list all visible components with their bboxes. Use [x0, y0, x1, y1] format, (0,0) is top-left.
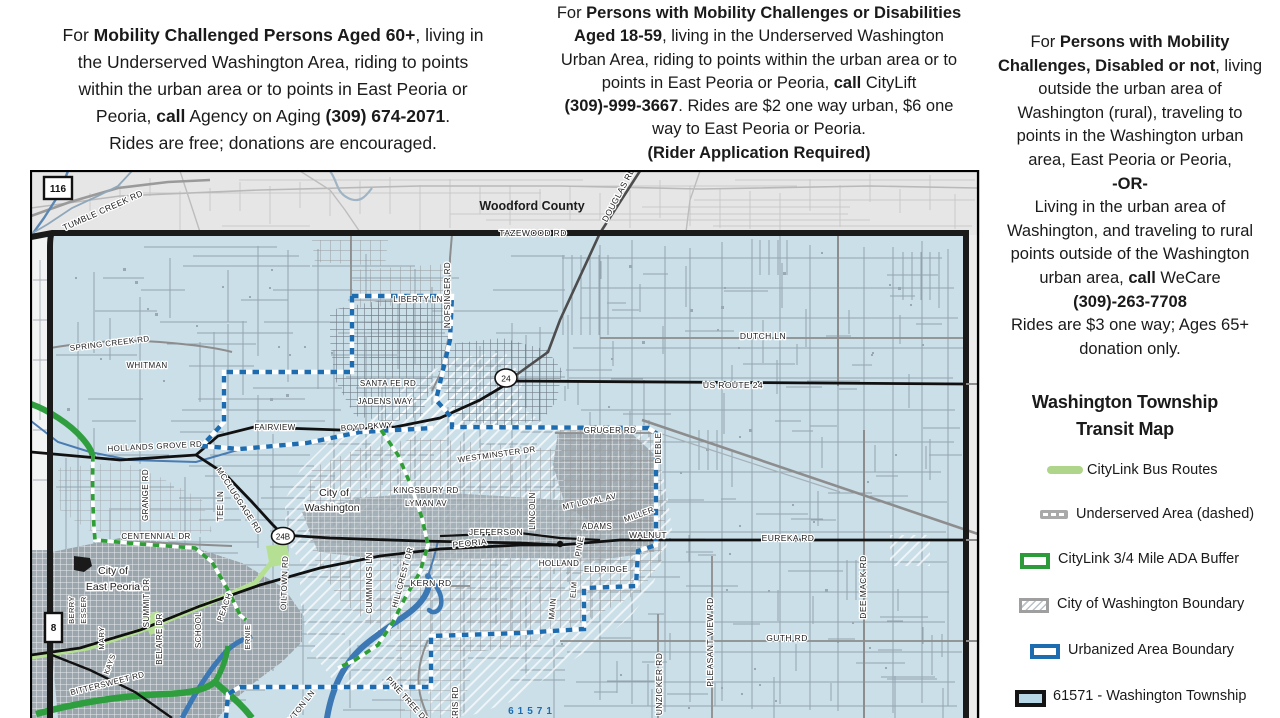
svg-text:WHITMAN: WHITMAN — [126, 361, 167, 370]
svg-text:OILTOWN RD: OILTOWN RD — [279, 556, 290, 611]
svg-text:61571: 61571 — [508, 706, 556, 717]
svg-text:BERRY: BERRY — [67, 596, 76, 624]
svg-text:DIEBLE: DIEBLE — [654, 433, 663, 464]
svg-text:GRUGER RD: GRUGER RD — [584, 426, 637, 435]
svg-text:City of: City of — [319, 487, 349, 499]
svg-text:CUMMINGS LN: CUMMINGS LN — [365, 552, 374, 613]
svg-text:KINGSBURY RD: KINGSBURY RD — [393, 486, 458, 495]
svg-text:KERN RD: KERN RD — [410, 578, 451, 588]
svg-text:City of: City of — [98, 565, 128, 577]
svg-text:24: 24 — [501, 374, 511, 384]
svg-text:MARY: MARY — [97, 626, 106, 649]
svg-text:MAIN: MAIN — [547, 598, 558, 620]
svg-text:TAZEWOOD RD: TAZEWOOD RD — [499, 228, 567, 238]
svg-text:ELDRIDGE: ELDRIDGE — [584, 565, 628, 574]
svg-text:Washington: Washington — [304, 502, 359, 514]
svg-text:Woodford County: Woodford County — [479, 199, 584, 213]
svg-text:LYMAN AV: LYMAN AV — [405, 499, 447, 508]
svg-text:SCHOOL: SCHOOL — [194, 612, 203, 648]
svg-text:DUTCH LN: DUTCH LN — [740, 331, 786, 341]
svg-text:ELM: ELM — [568, 581, 578, 598]
svg-text:LINCOLN: LINCOLN — [528, 492, 537, 529]
svg-text:SUMMIT DR: SUMMIT DR — [142, 579, 151, 628]
svg-text:East Peoria: East Peoria — [86, 581, 140, 593]
svg-text:ADAMS: ADAMS — [582, 522, 612, 531]
svg-text:DEE MACK RD: DEE MACK RD — [858, 555, 868, 618]
svg-text:UNZICKER RD: UNZICKER RD — [654, 653, 664, 716]
svg-text:BELAIRE DR: BELAIRE DR — [155, 613, 164, 665]
svg-text:LIBERTY LN: LIBERTY LN — [393, 295, 443, 304]
svg-text:GRANGE RD: GRANGE RD — [141, 469, 150, 521]
svg-text:CENTENNIAL DR: CENTENNIAL DR — [121, 532, 190, 541]
svg-text:GUTH RD: GUTH RD — [766, 633, 808, 643]
svg-text:JEFFERSON: JEFFERSON — [469, 527, 523, 537]
svg-text:WALNUT: WALNUT — [629, 530, 667, 540]
svg-text:EUREKA RD: EUREKA RD — [762, 533, 815, 543]
svg-text:NOFSINGER RD: NOFSINGER RD — [443, 262, 452, 328]
svg-text:TEE LN: TEE LN — [216, 491, 225, 521]
svg-text:116: 116 — [50, 184, 67, 195]
svg-text:ERNIE: ERNIE — [243, 625, 252, 650]
svg-text:HOLLAND: HOLLAND — [539, 559, 580, 568]
svg-text:24B: 24B — [276, 533, 290, 542]
svg-text:FAIRVIEW: FAIRVIEW — [254, 423, 295, 432]
svg-text:PLEASANT VIEW RD: PLEASANT VIEW RD — [705, 597, 715, 686]
svg-text:JADENS WAY: JADENS WAY — [357, 397, 412, 406]
svg-text:US ROUTE 24: US ROUTE 24 — [703, 380, 763, 390]
svg-text:8: 8 — [51, 623, 57, 634]
svg-text:ESSER: ESSER — [79, 596, 88, 624]
svg-text:KRIS RD: KRIS RD — [451, 686, 460, 718]
svg-text:SANTA FE RD: SANTA FE RD — [360, 379, 416, 388]
